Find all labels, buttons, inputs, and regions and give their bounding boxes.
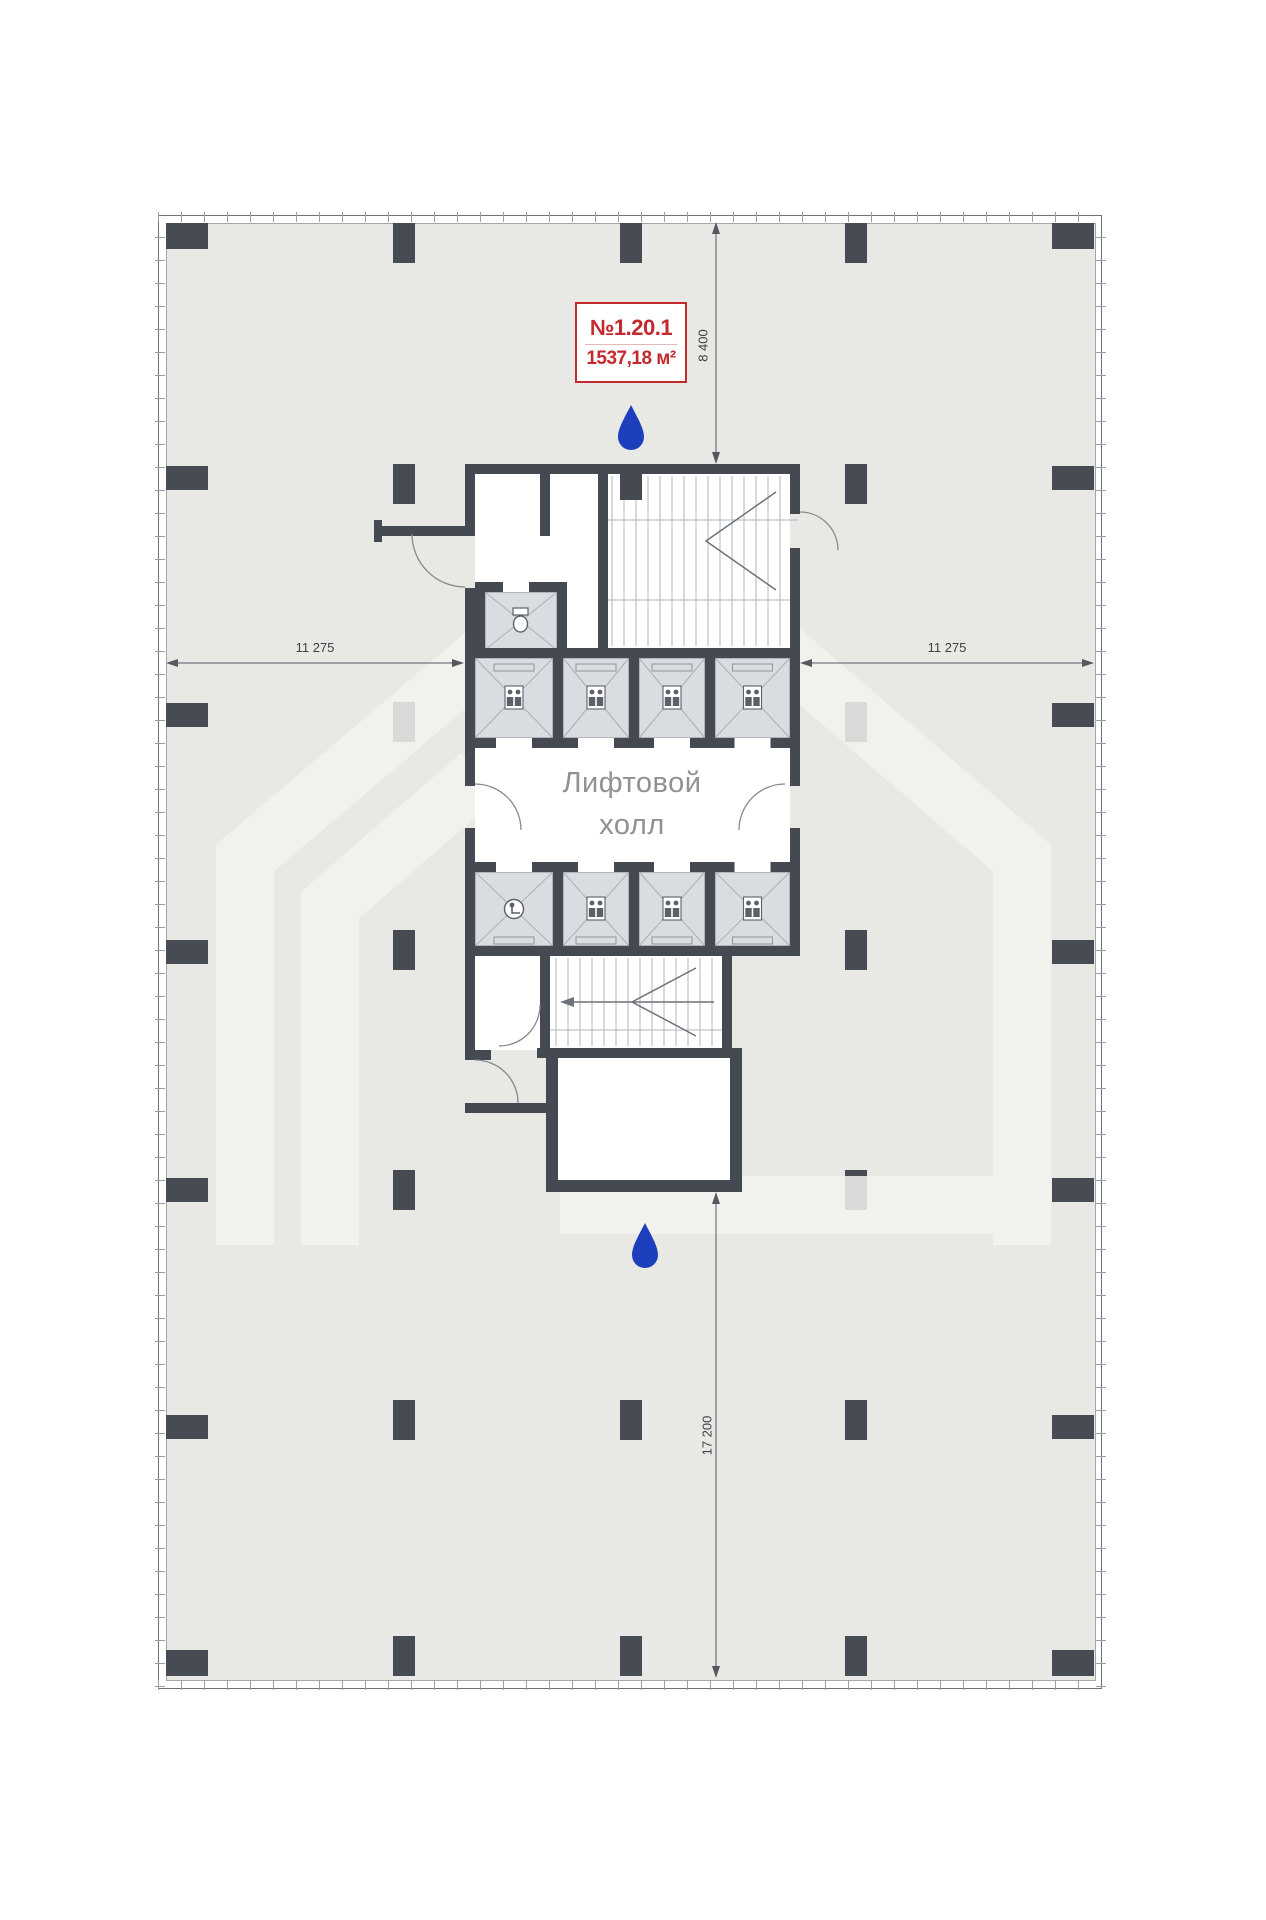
floor-plan: 8 400 17 200 11 275 11 275 Лифтовой холл… — [0, 0, 1266, 1920]
water-drops — [0, 0, 1266, 1920]
water-drop-icon — [618, 405, 644, 450]
water-drop-icon — [632, 1223, 658, 1268]
